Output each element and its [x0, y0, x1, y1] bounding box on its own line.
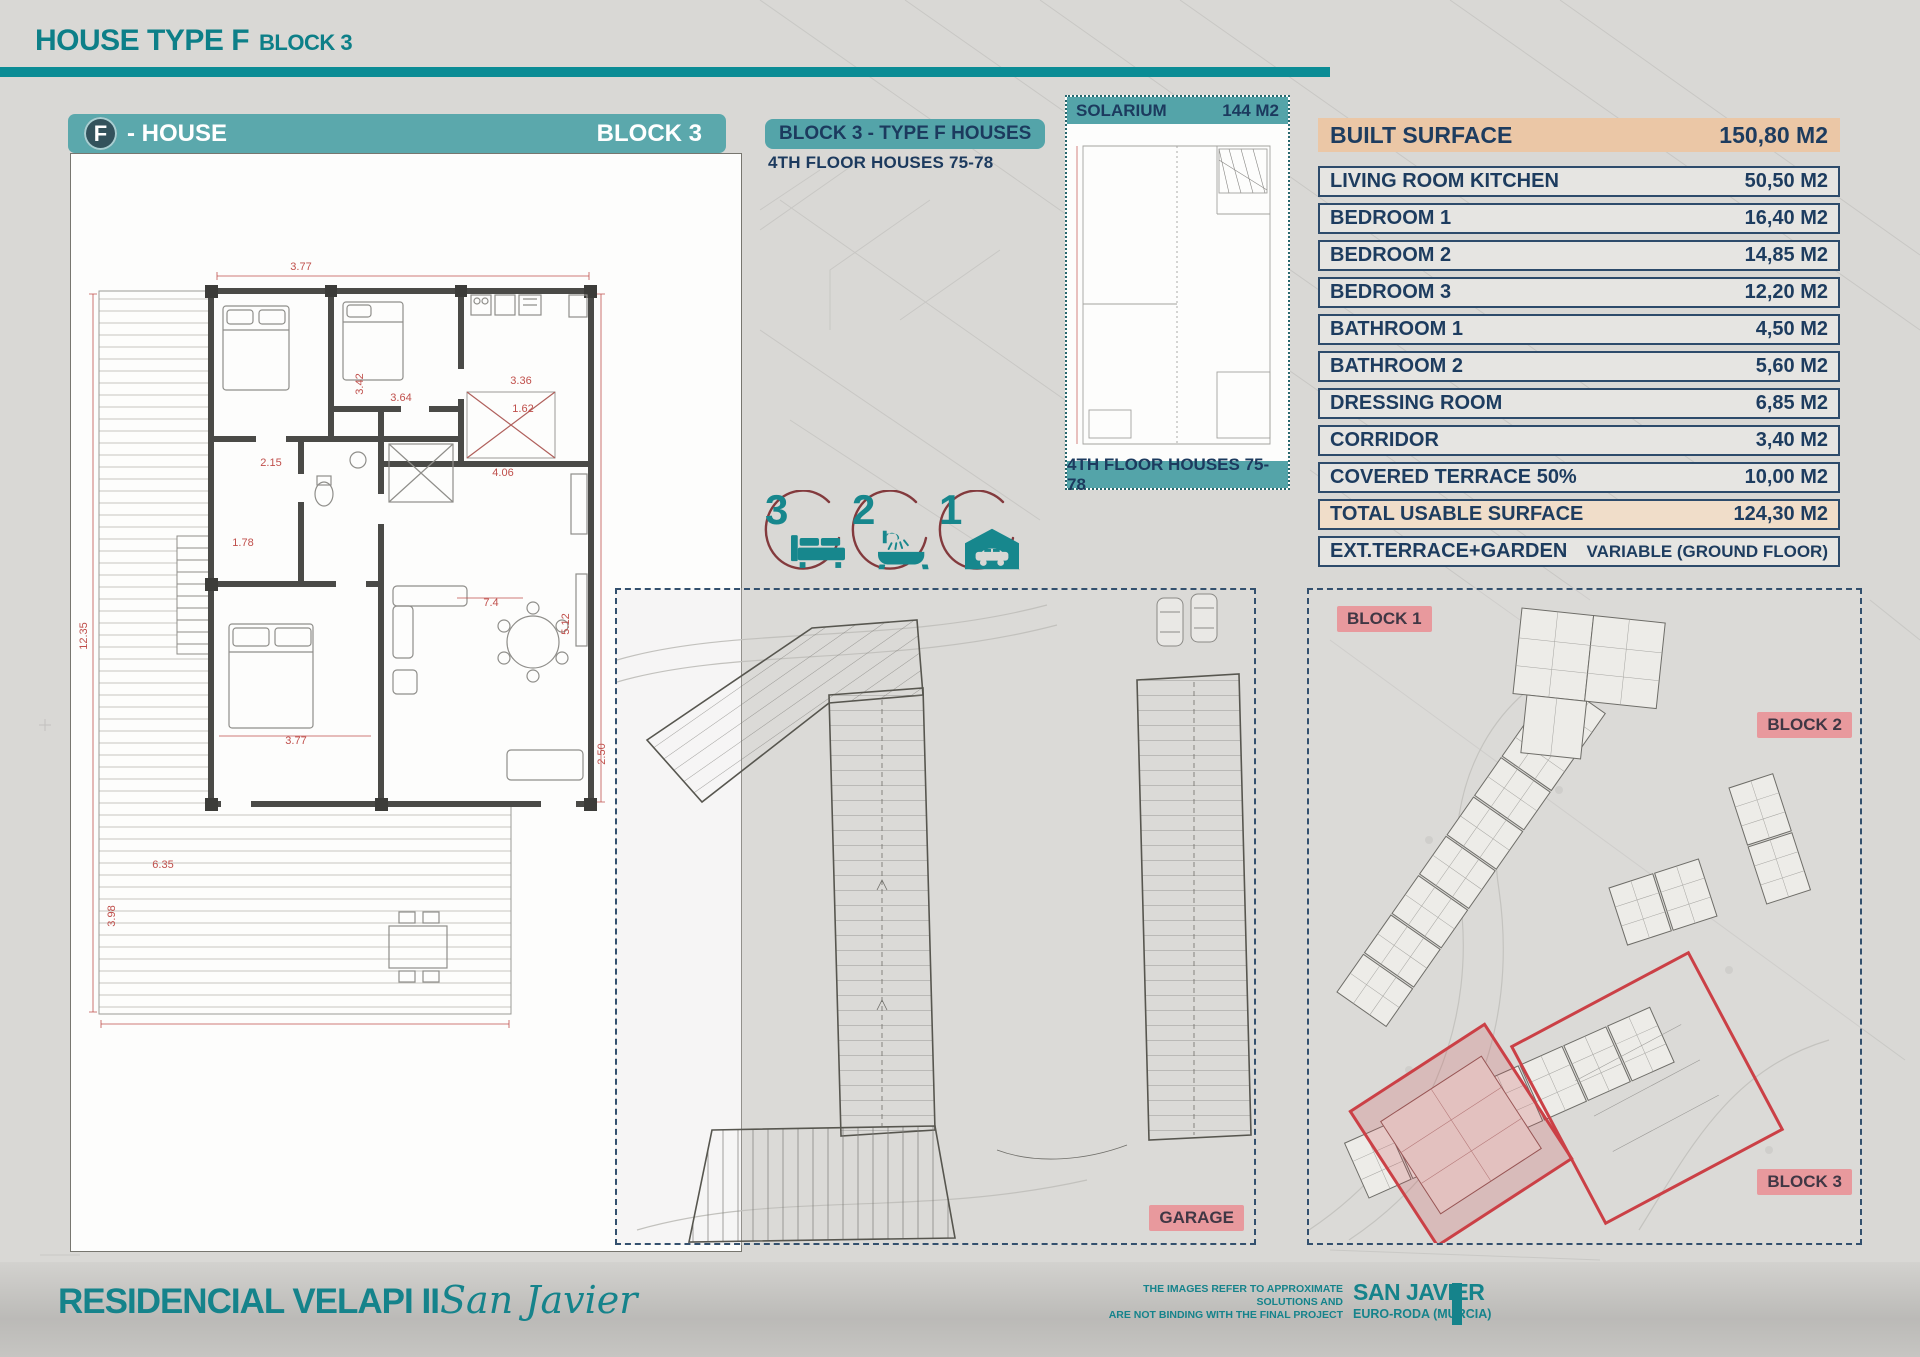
block2-badge: BLOCK 2 [1757, 712, 1852, 738]
solarium-plan [1067, 124, 1288, 461]
surface-row-label: CORRIDOR [1330, 429, 1439, 452]
surface-row: CORRIDOR 3,40 M2 [1318, 425, 1840, 456]
footer-sublocation: EURO-RODA (MURCIA) [1353, 1307, 1491, 1321]
svg-text:1.78: 1.78 [232, 537, 253, 549]
surface-row: BATHROOM 2 5,60 M2 [1318, 351, 1840, 382]
svg-text:3.42: 3.42 [354, 373, 366, 394]
banner-label: - HOUSE [127, 120, 227, 148]
svg-text:2.50: 2.50 [596, 743, 608, 764]
block1-badge: BLOCK 1 [1337, 606, 1432, 632]
block2-buildings [1507, 608, 1665, 766]
footer-location-bar [1452, 1283, 1462, 1325]
surface-row: DRESSING ROOM 6,85 M2 [1318, 388, 1840, 419]
block2-buildings [1729, 774, 1810, 904]
svg-text:5.12: 5.12 [560, 613, 572, 634]
surface-row: EXT.TERRACE+GARDEN VARIABLE (GROUND FLOO… [1318, 536, 1840, 567]
surface-row-label: COVERED TERRACE 50% [1330, 466, 1577, 489]
parked-cars [1157, 594, 1217, 646]
surface-row-value: 50,50 M2 [1745, 170, 1828, 193]
surface-header-label: BUILT SURFACE [1330, 122, 1512, 149]
feature-garage: 1 [937, 490, 1019, 576]
garage-count: 1 [939, 486, 962, 534]
surface-header-value: 150,80 M2 [1719, 122, 1828, 149]
solarium-title: SOLARIUM [1076, 101, 1167, 121]
svg-text:3.64: 3.64 [390, 392, 411, 404]
surface-row: BEDROOM 2 14,85 M2 [1318, 240, 1840, 271]
footer-location: SAN JAVIER [1353, 1279, 1484, 1306]
solarium-header: SOLARIUM 144 M2 [1067, 97, 1288, 124]
garage-icon [965, 528, 1019, 570]
page-title-main: HOUSE TYPE F [35, 24, 249, 57]
surface-row: LIVING ROOM KITCHEN 50,50 M2 [1318, 166, 1840, 197]
surface-row-value: 10,00 M2 [1745, 466, 1828, 489]
surface-row-value: 3,40 M2 [1756, 429, 1828, 452]
surface-row-label: DRESSING ROOM [1330, 392, 1502, 415]
svg-text:1.62: 1.62 [512, 403, 533, 415]
blocks-siteplan: BLOCK 1 BLOCK 2 BLOCK 3 [1307, 588, 1862, 1245]
bath-icon [878, 530, 932, 570]
blocks-plan-drawing [1309, 590, 1860, 1243]
block-type-subtitle: 4TH FLOOR HOUSES 75-78 [768, 153, 993, 173]
surface-table: BUILT SURFACE 150,80 M2 LIVING ROOM KITC… [1318, 118, 1840, 573]
svg-text:3.77: 3.77 [285, 735, 306, 747]
surface-row: COVERED TERRACE 50% 10,00 M2 [1318, 462, 1840, 493]
surface-row: BEDROOM 3 12,20 M2 [1318, 277, 1840, 308]
surface-row-label: BATHROOM 2 [1330, 355, 1463, 378]
bedrooms-count: 3 [765, 486, 788, 534]
footer-disclaimer: THE IMAGES REFER TO APPROXIMATE SOLUTION… [1093, 1283, 1343, 1322]
svg-text:3.77: 3.77 [290, 261, 311, 273]
block2-buildings [1609, 859, 1717, 945]
surface-row-label: BEDROOM 3 [1330, 281, 1451, 304]
surface-row-label: BATHROOM 1 [1330, 318, 1463, 341]
surface-row-label: TOTAL USABLE SURFACE [1330, 503, 1583, 526]
surface-row-label: LIVING ROOM KITCHEN [1330, 170, 1559, 193]
surface-row-value: 124,30 M2 [1733, 503, 1828, 526]
svg-text:12.35: 12.35 [78, 622, 90, 650]
surface-row-value: 6,85 M2 [1756, 392, 1828, 415]
feature-bedrooms: 3 [763, 490, 845, 576]
type-letter-badge: F [84, 117, 117, 150]
surface-rows: LIVING ROOM KITCHEN 50,50 M2 BEDROOM 1 1… [1318, 166, 1840, 567]
title-underline-bar [0, 67, 1330, 77]
surface-row-value: 5,60 M2 [1756, 355, 1828, 378]
solarium-panel: SOLARIUM 144 M2 4TH FLOOR HOUSES 75-78 [1065, 95, 1290, 490]
solarium-caption: 4TH FLOOR HOUSES 75-78 [1067, 461, 1288, 488]
garage-siteplan: GARAGE [615, 588, 1256, 1245]
surface-row-value: VARIABLE (GROUND FLOOR) [1587, 542, 1828, 562]
garage-badge: GARAGE [1149, 1205, 1244, 1231]
surface-row-value: 12,20 M2 [1745, 281, 1828, 304]
bathrooms-count: 2 [852, 486, 875, 534]
surface-row-value: 16,40 M2 [1745, 207, 1828, 230]
block3-badge: BLOCK 3 [1757, 1169, 1852, 1195]
surface-row-value: 4,50 M2 [1756, 318, 1828, 341]
surface-row: BATHROOM 1 4,50 M2 [1318, 314, 1840, 345]
page-title: HOUSE TYPE FBLOCK 3 [35, 24, 352, 58]
surface-row-label: EXT.TERRACE+GARDEN [1330, 540, 1567, 563]
svg-text:2.15: 2.15 [260, 457, 281, 469]
svg-text:3.98: 3.98 [106, 905, 118, 926]
bed-icon [791, 535, 845, 570]
feature-bathrooms: 2 [850, 490, 932, 576]
banner-block-label: BLOCK 3 [597, 120, 702, 148]
garage-plan-drawing [617, 590, 1254, 1243]
footer-brand: RESIDENCIAL VELAPI II [58, 1282, 439, 1322]
block-type-pill: BLOCK 3 - TYPE F HOUSES [765, 119, 1045, 149]
page-title-sub: BLOCK 3 [259, 30, 352, 55]
svg-text:4.06: 4.06 [492, 467, 513, 479]
surface-row-label: BEDROOM 2 [1330, 244, 1451, 267]
surface-row-label: BEDROOM 1 [1330, 207, 1451, 230]
footer-brand-script: San Javier [440, 1278, 637, 1322]
house-type-banner: F - HOUSE BLOCK 3 [68, 114, 726, 153]
surface-row-value: 14,85 M2 [1745, 244, 1828, 267]
surface-row: BEDROOM 1 16,40 M2 [1318, 203, 1840, 234]
svg-text:3.36: 3.36 [510, 375, 531, 387]
solarium-area: 144 M2 [1222, 101, 1279, 121]
svg-text:6.35: 6.35 [152, 859, 173, 871]
surface-table-header: BUILT SURFACE 150,80 M2 [1318, 118, 1840, 152]
svg-text:7.4: 7.4 [483, 597, 498, 609]
surface-row: TOTAL USABLE SURFACE 124,30 M2 [1318, 499, 1840, 530]
